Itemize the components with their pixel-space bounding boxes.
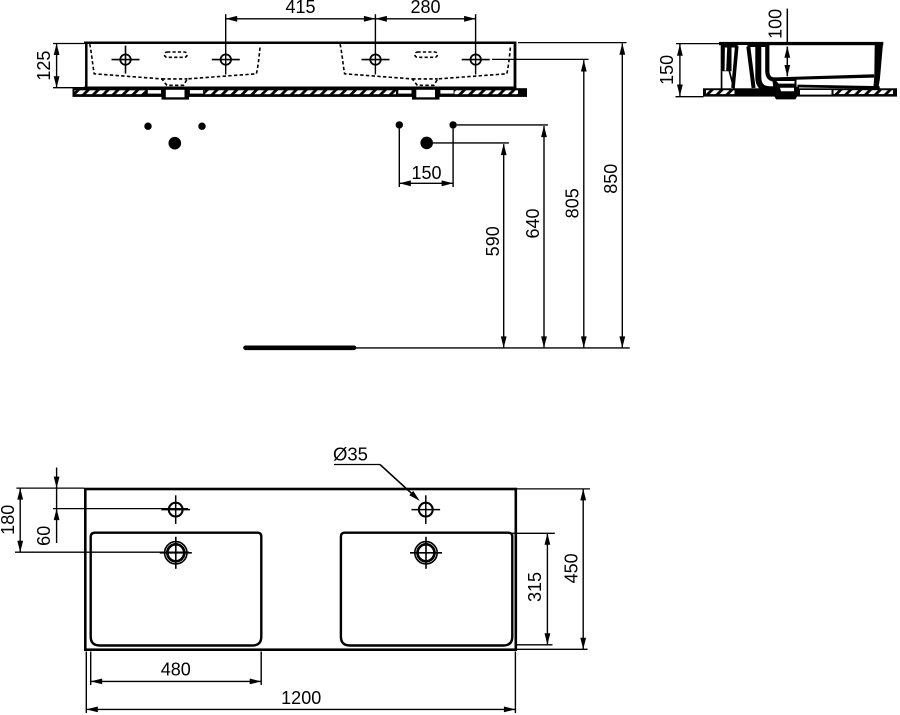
svg-text:125: 125 <box>34 51 54 81</box>
svg-text:150: 150 <box>657 55 677 85</box>
svg-text:Ø35: Ø35 <box>333 443 368 464</box>
svg-text:315: 315 <box>525 572 545 602</box>
svg-text:150: 150 <box>411 163 441 183</box>
svg-text:100: 100 <box>765 9 785 39</box>
svg-text:640: 640 <box>523 208 543 238</box>
svg-text:450: 450 <box>561 553 581 583</box>
svg-text:180: 180 <box>0 505 18 535</box>
svg-text:805: 805 <box>562 188 582 218</box>
svg-text:60: 60 <box>34 526 54 546</box>
svg-text:280: 280 <box>410 0 440 17</box>
svg-text:850: 850 <box>601 164 621 194</box>
svg-text:415: 415 <box>285 0 315 17</box>
svg-text:590: 590 <box>483 226 503 256</box>
svg-text:480: 480 <box>161 659 191 679</box>
svg-text:1200: 1200 <box>281 688 321 708</box>
